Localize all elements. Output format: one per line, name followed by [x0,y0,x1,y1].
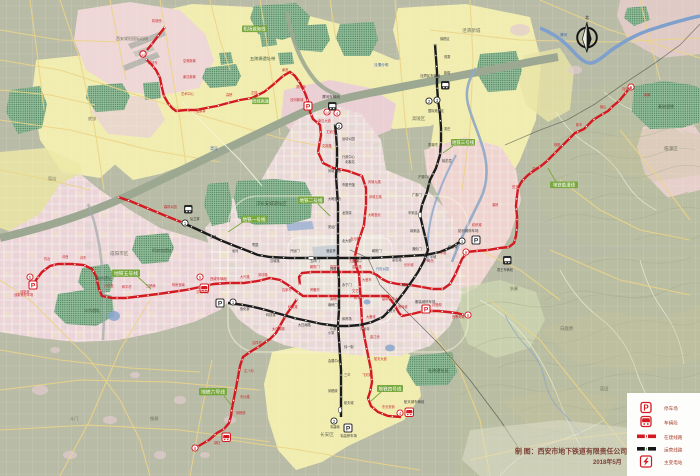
svg-text:香王车辆段: 香王车辆段 [497,267,514,272]
svg-text:P: P [474,238,479,245]
svg-text:丈八沟: 丈八沟 [244,368,254,373]
svg-text:劳动路: 劳动路 [258,272,268,277]
svg-text:吉祥村: 吉祥村 [252,340,262,345]
svg-text:曲江池: 曲江池 [370,334,380,339]
svg-text:地铁四号线: 地铁四号线 [379,385,402,392]
svg-text:凤城五路: 凤城五路 [328,168,342,173]
svg-text:地铁三号线: 地铁三号线 [452,139,475,146]
svg-text:田王: 田王 [512,185,519,189]
svg-text:西咸车辆段: 西咸车辆段 [210,276,228,281]
svg-text:蓝田: 蓝田 [600,385,608,392]
svg-text:纺织城: 纺织城 [448,244,458,249]
svg-text:创新港停车场: 创新港停车场 [14,292,33,297]
svg-text:北客站: 北客站 [345,159,355,164]
svg-text:北池头: 北池头 [386,308,396,313]
svg-text:秦宫: 秦宫 [282,67,288,72]
svg-text:太白南路: 太白南路 [272,326,286,331]
svg-text:P: P [643,404,649,413]
svg-text:航天城: 航天城 [344,400,354,405]
svg-text:纺织城: 纺织城 [472,222,482,227]
svg-text:文景路: 文景路 [322,143,332,148]
svg-text:钟楼: 钟楼 [330,266,337,271]
svg-text:绕城高速: 绕城高速 [252,98,270,105]
svg-text:泾河新城: 泾河新城 [290,97,304,102]
svg-text:阿房宫遗址: 阿房宫遗址 [152,247,172,253]
svg-text:兵马俑: 兵马俑 [622,86,632,91]
svg-text:纬一街: 纬一街 [344,344,354,349]
svg-text:凤城九路: 凤城九路 [368,179,382,184]
svg-text:沣西: 沣西 [62,254,68,259]
svg-text:三桥南: 三桥南 [146,283,156,288]
svg-text:航天城车辆段: 航天城车辆段 [404,399,425,404]
svg-text:秦始皇陵: 秦始皇陵 [658,103,674,109]
svg-text:延兴门: 延兴门 [402,282,412,287]
svg-text:杜陵遗址区: 杜陵遗址区 [428,367,449,374]
svg-text:临潼区: 临潼区 [664,145,678,152]
svg-text:会展中心: 会展中心 [328,358,342,363]
svg-text:地铁六号线: 地铁六号线 [201,389,225,396]
svg-text:皂河: 皂河 [232,248,239,253]
svg-text:双寨: 双寨 [444,54,451,59]
svg-text:白鹿原: 白鹿原 [560,325,574,332]
svg-text:渭河车辆段: 渭河车辆段 [322,94,340,99]
svg-text:长安区: 长安区 [320,431,334,438]
svg-text:P: P [346,426,351,433]
svg-text:泾渭区车辆段: 泾渭区车辆段 [420,73,441,78]
svg-text:P: P [424,307,429,314]
svg-text:窑店: 窑店 [48,175,56,182]
svg-text:灞桥: 灞桥 [492,202,499,207]
svg-text:停车场: 停车场 [664,405,678,412]
svg-text:东仪路: 东仪路 [240,394,250,399]
svg-text:等驾坡: 等驾坡 [398,304,408,309]
svg-text:边家村: 边家村 [282,287,292,292]
svg-text:枣园: 枣园 [252,242,258,247]
svg-text:半坡: 半坡 [440,250,447,255]
svg-text:凤栖原: 凤栖原 [236,410,246,415]
svg-text:大明宫西: 大明宫西 [328,196,341,201]
svg-text:三爻: 三爻 [344,373,351,377]
svg-text:和平门: 和平门 [354,295,364,300]
svg-text:开远门: 开远门 [290,248,300,253]
svg-text:韦曲停车场: 韦曲停车场 [340,433,358,438]
svg-text:小寨: 小寨 [330,326,337,331]
svg-text:郭杜: 郭杜 [214,440,221,445]
svg-text:底张: 底张 [88,115,97,122]
svg-text:空港新城: 空港新城 [183,58,197,63]
svg-text:南稍门: 南稍门 [330,296,340,301]
svg-text:大明宫北: 大明宫北 [368,212,382,217]
svg-text:细柳: 细柳 [150,415,158,422]
svg-text:浐灞中心: 浐灞中心 [418,174,432,179]
svg-text:P: P [306,104,311,111]
svg-text:P: P [31,283,36,290]
svg-text:金花路: 金花路 [352,264,362,269]
svg-text:六村堡: 六村堡 [104,283,114,288]
svg-text:西等驾坡: 西等驾坡 [452,314,466,319]
svg-text:新筑: 新筑 [444,70,451,75]
svg-text:科技路: 科技路 [266,312,276,317]
svg-text:科技路: 科技路 [288,304,298,309]
svg-text:斗门: 斗门 [70,415,78,422]
svg-text:体育场: 体育场 [342,316,352,321]
svg-text:泾渭新城: 泾渭新城 [462,27,481,34]
svg-text:大差市: 大差市 [362,277,372,282]
svg-text:龙首原: 龙首原 [342,210,352,215]
svg-text:安远门: 安远门 [328,224,338,229]
svg-text:渭河: 渭河 [210,146,218,151]
svg-text:永宁门: 永宁门 [342,282,352,287]
svg-text:胡家庙: 胡家庙 [410,228,420,233]
svg-text:在建线路: 在建线路 [664,434,683,441]
svg-text:朝阳门: 朝阳门 [310,264,320,269]
svg-text:左排: 左排 [251,90,258,95]
svg-text:建筑科技大: 建筑科技大 [382,296,399,301]
svg-text:鱼化寨: 鱼化寨 [240,306,250,311]
svg-text:机场东: 机场东 [148,60,158,65]
svg-text:务庄: 务庄 [444,126,451,131]
svg-text:新丰: 新丰 [576,122,583,127]
svg-text:桃花潭: 桃花潭 [442,158,452,163]
svg-text:北大街: 北大街 [342,238,352,243]
svg-text:汉城南路: 汉城南路 [196,289,210,294]
svg-text:康复路: 康复路 [392,257,402,262]
svg-text:地铁五号线: 地铁五号线 [114,270,138,277]
svg-text:长乐坡: 长乐坡 [404,262,414,267]
svg-text:阿房宫南: 阿房宫南 [172,282,185,287]
svg-text:14: 14 [141,53,145,57]
svg-text:咸阳市区: 咸阳市区 [110,250,129,257]
svg-text:秦汉大道: 秦汉大道 [318,118,332,123]
svg-text:太白南路: 太白南路 [298,322,312,327]
svg-text:高陵区: 高陵区 [412,115,426,122]
svg-text:国际港务区: 国际港务区 [428,108,445,113]
svg-text:秦汉新城: 秦汉新城 [183,74,197,79]
svg-text:地铁临潼线: 地铁临潼线 [553,182,576,189]
svg-text:通化门: 通化门 [412,246,422,251]
svg-text:狄寨: 狄寨 [510,285,518,291]
svg-text:飞天路: 飞天路 [362,372,372,377]
svg-text:摆旗寨: 摆旗寨 [196,108,206,113]
svg-text:大雁塔: 大雁塔 [366,314,376,319]
svg-text:汉城路: 汉城路 [270,258,280,263]
svg-text:机场城际线: 机场城际线 [244,26,267,33]
svg-text:镐京遗址: 镐京遗址 [96,275,112,281]
svg-text:高桥: 高桥 [226,92,233,97]
svg-text:渭河南: 渭河南 [296,84,306,89]
svg-text:玉祥门: 玉祥门 [310,258,320,263]
svg-text:朝阳门: 朝阳门 [372,248,382,253]
svg-text:地铁二号线: 地铁二号线 [300,197,323,204]
svg-text:14: 14 [325,111,329,115]
svg-text:骊山: 骊山 [600,104,606,109]
svg-text:香湖湾: 香湖湾 [428,142,438,147]
svg-text:车辆段: 车辆段 [664,420,678,427]
svg-text:秦陵: 秦陵 [644,92,651,97]
svg-text:黄雁村: 黄雁村 [310,287,320,292]
svg-text:文艺路: 文艺路 [352,288,362,293]
svg-text:服装城停车场: 服装城停车场 [415,299,436,304]
svg-text:钓台: 钓台 [44,256,50,261]
svg-text:凤栖原: 凤栖原 [328,388,338,393]
svg-text:泾渭分明: 泾渭分明 [374,62,389,67]
svg-text:三桥: 三桥 [210,234,217,239]
svg-text:地铁一号线: 地铁一号线 [243,216,266,223]
svg-text:森林公园: 森林公园 [164,204,177,209]
svg-text:运动公园: 运动公园 [342,136,355,141]
svg-text:尤家庄: 尤家庄 [326,129,336,134]
svg-text:东长安街: 东长安街 [382,404,396,409]
svg-text:行政中心: 行政中心 [342,154,356,159]
svg-text:机场西: 机场西 [152,18,162,23]
svg-text:主变电站: 主变电站 [664,459,683,466]
svg-text:P: P [218,301,223,308]
svg-text:半坡: 半坡 [430,254,437,259]
svg-text:洒金桥: 洒金桥 [326,248,336,253]
svg-text:沣京遗址: 沣京遗址 [84,307,100,313]
svg-text:北: 北 [585,14,589,20]
svg-text:纺织城停车场: 纺织城停车场 [458,228,479,233]
svg-text:五路口: 五路口 [352,258,362,263]
svg-text:运营线路: 运营线路 [664,446,683,453]
svg-text:辛家庙: 辛家庙 [408,210,418,215]
svg-text:洪庆: 洪庆 [532,166,539,171]
svg-text:航天大道: 航天大道 [374,356,388,361]
svg-text:市图书馆: 市图书馆 [342,182,355,187]
svg-text:兴庆公园: 兴庆公园 [376,266,389,271]
svg-text:广泰门: 广泰门 [412,192,422,197]
svg-text:五陵塬遗址带: 五陵塬遗址带 [250,55,275,62]
svg-text:韦曲南: 韦曲南 [330,424,340,429]
svg-text:凤城五路: 凤城五路 [369,194,383,199]
svg-text:保税区: 保税区 [440,36,450,41]
svg-text:和平村: 和平村 [122,284,132,289]
svg-text:艺术中心: 艺术中心 [181,91,195,96]
svg-text:青龙寺: 青龙寺 [360,326,370,331]
svg-text:沣东: 沣东 [80,255,86,260]
svg-text:制 图：西安市地下铁道有限责任公司: 制 图：西安市地下铁道有限责任公司 [515,447,627,456]
svg-text:2018年5月: 2018年5月 [593,458,622,466]
svg-text:栎阳: 栎阳 [554,142,560,147]
svg-text:西安咸阳国际机场: 西安咸阳国际机场 [116,35,148,41]
svg-text:汉长安城遗址区: 汉长安城遗址区 [256,200,287,207]
svg-text:南稍门: 南稍门 [328,302,338,307]
svg-text:渭河: 渭河 [560,32,568,37]
svg-text:后卫寨: 后卫寨 [190,216,200,221]
svg-text:大兴路: 大兴路 [240,274,250,279]
